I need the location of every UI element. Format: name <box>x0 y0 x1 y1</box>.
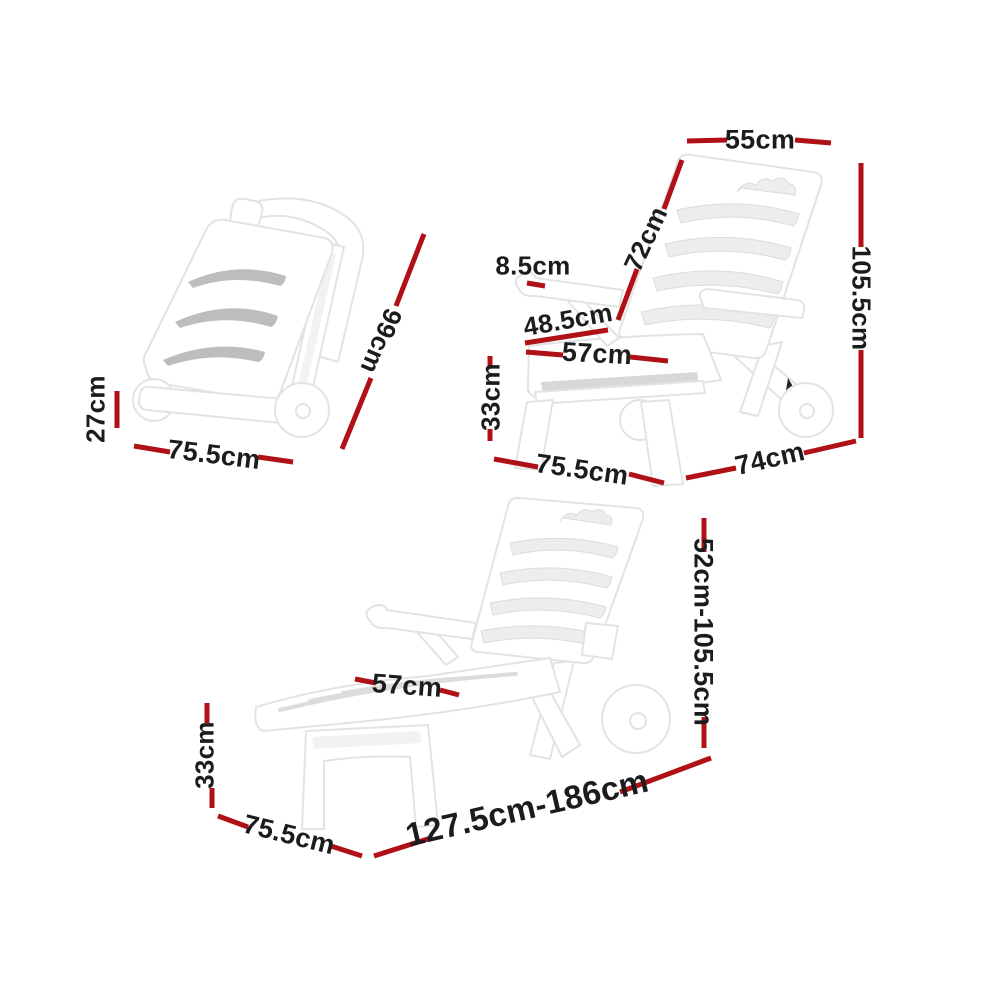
chair-armrest-thickness-label: 8.5cm <box>495 251 570 282</box>
chair-overall-height-label: 105.5cm <box>846 246 877 351</box>
folded-chair-illustration <box>128 190 408 460</box>
folded-height-label: 27cm <box>81 375 112 443</box>
lounger-seat-height-label: 33cm <box>190 721 221 789</box>
chair-right-wheel-hub <box>800 404 814 418</box>
folded-right-wheel-hub <box>296 404 310 418</box>
lounger-right-armrest <box>582 623 618 659</box>
chair-seat-width-label: 57cm <box>561 337 633 372</box>
chair-backrest-width-label: 55cm <box>725 125 795 156</box>
lounger-seat-width-label: 57cm <box>371 668 443 704</box>
chair-front-mid-leg <box>641 400 683 486</box>
chair-backrest-width-line-right <box>795 140 831 143</box>
lounger-wheel-hub <box>630 713 646 729</box>
product-dimension-diagram: 27cm 75.5cm 99cm 55cm 72cm 8.5cm 48.5cm … <box>0 0 1000 1000</box>
lounger-adjustable-height-label: 52cm-105.5cm <box>688 538 719 726</box>
chair-backrest-width-line-left <box>687 140 727 141</box>
chair-seat-height-label: 33cm <box>476 363 507 431</box>
